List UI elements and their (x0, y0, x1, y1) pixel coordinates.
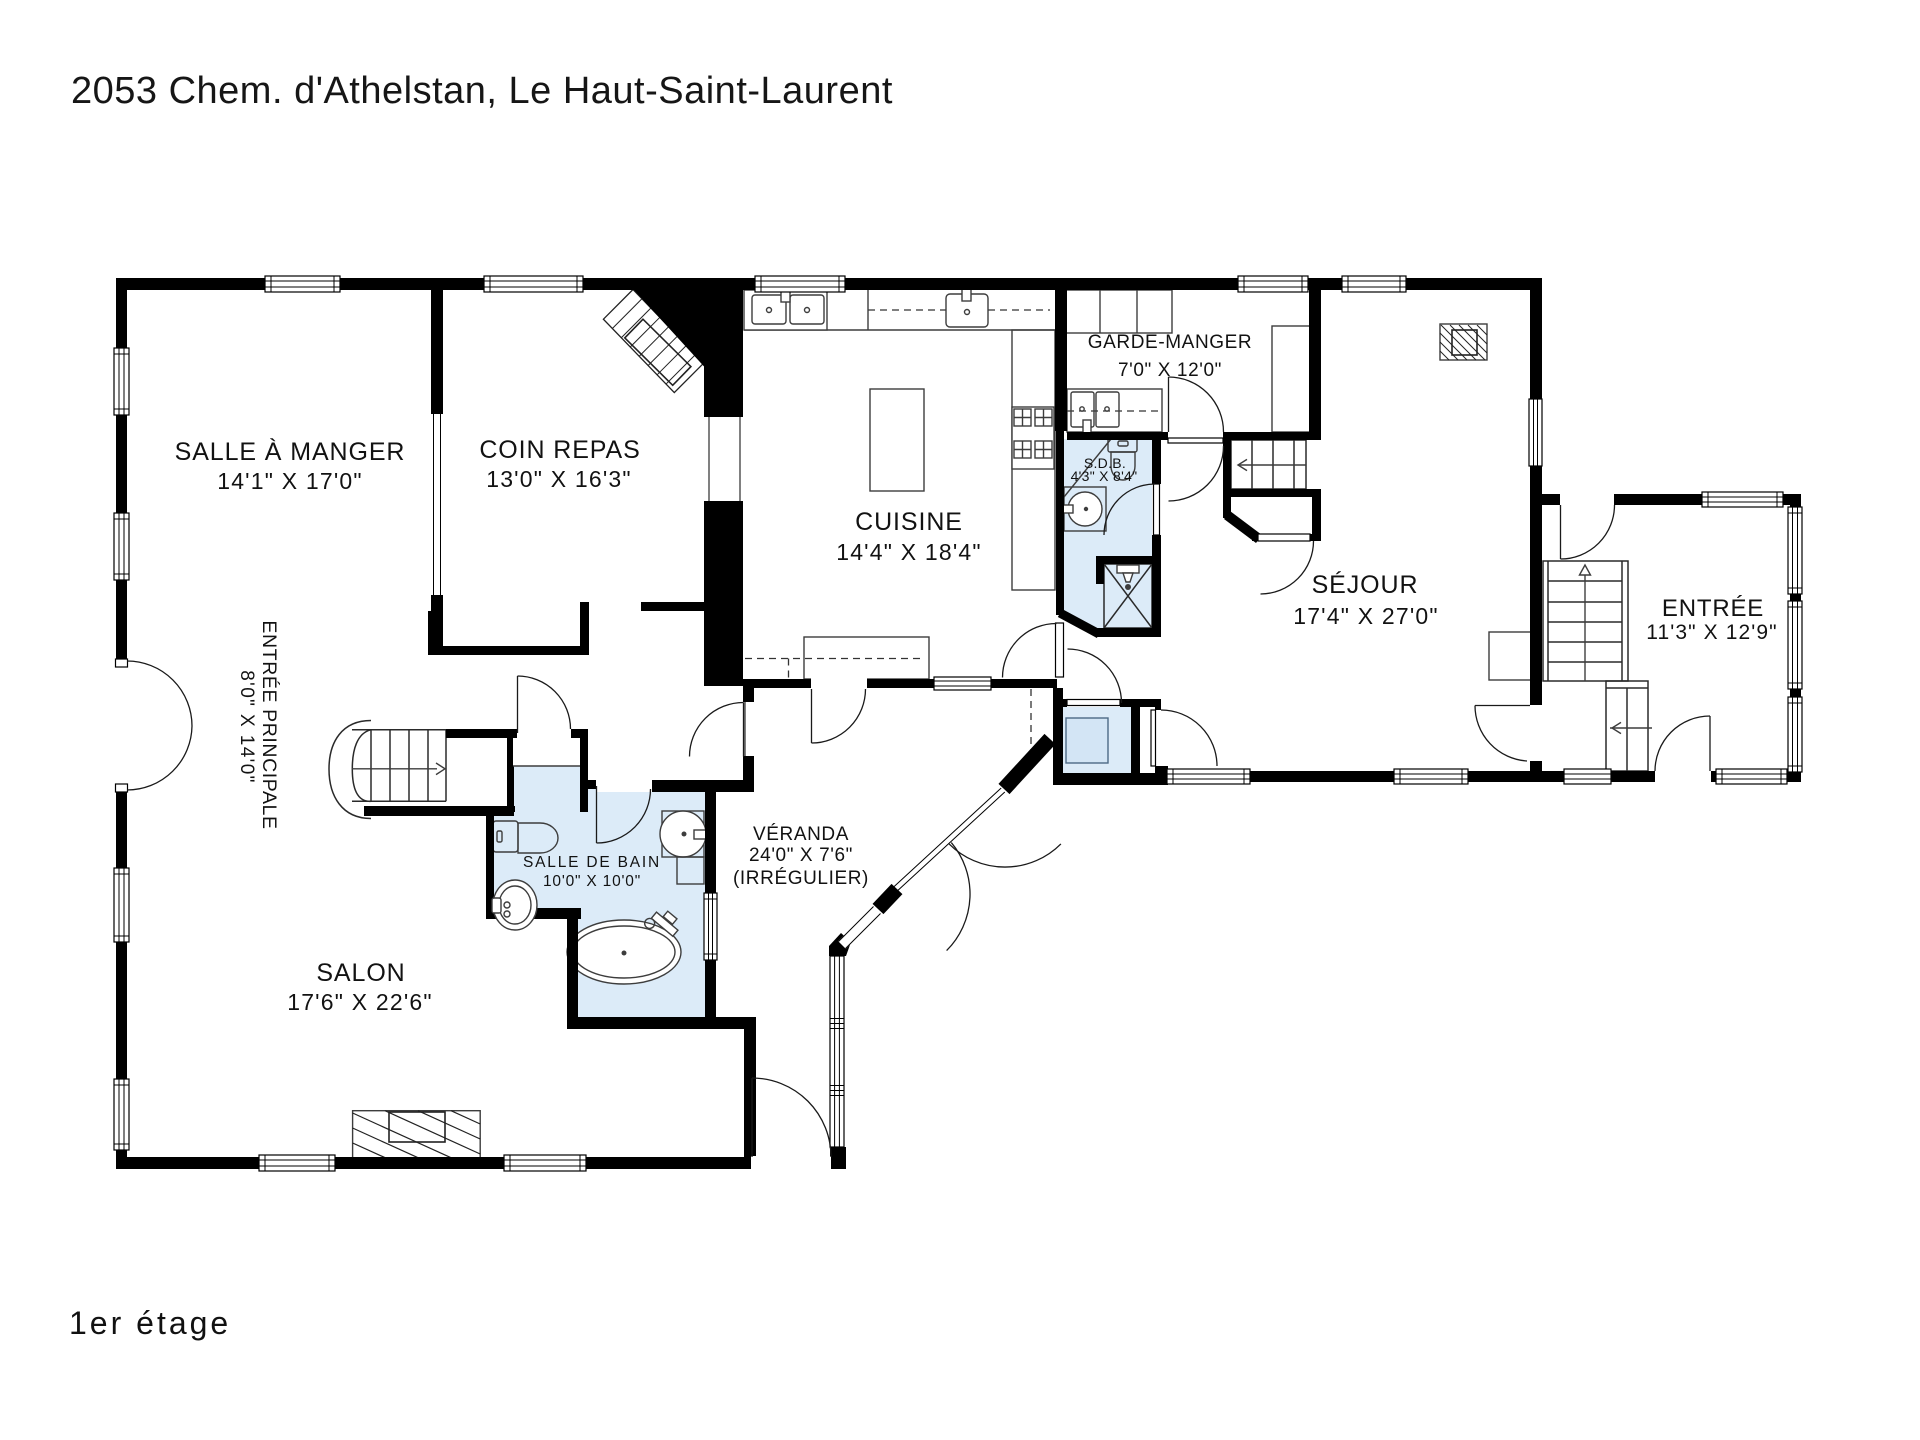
svg-text:SÉJOUR: SÉJOUR (1312, 570, 1419, 599)
svg-text:ENTRÉE: ENTRÉE (1662, 595, 1764, 622)
svg-text:8'0" X 14'0": 8'0" X 14'0" (236, 670, 257, 784)
svg-text:1er étage: 1er étage (69, 1305, 231, 1341)
svg-text:COIN REPAS: COIN REPAS (479, 436, 640, 464)
svg-text:11'3" X 12'9": 11'3" X 12'9" (1646, 621, 1777, 644)
svg-text:GARDE-MANGER: GARDE-MANGER (1088, 332, 1253, 353)
svg-text:SALLE À MANGER: SALLE À MANGER (175, 437, 406, 466)
svg-text:24'0" X 7'6": 24'0" X 7'6" (749, 845, 853, 866)
svg-text:14'4" X 18'4": 14'4" X 18'4" (836, 539, 982, 565)
svg-text:(IRRÉGULIER): (IRRÉGULIER) (733, 868, 869, 889)
svg-text:CUISINE: CUISINE (855, 508, 963, 536)
svg-text:VÉRANDA: VÉRANDA (753, 824, 849, 845)
svg-text:17'4" X 27'0": 17'4" X 27'0" (1293, 603, 1439, 629)
svg-text:10'0" X 10'0": 10'0" X 10'0" (543, 873, 641, 890)
svg-text:13'0" X 16'3": 13'0" X 16'3" (486, 466, 632, 492)
svg-text:2053 Chem. d'Athelstan, Le Hau: 2053 Chem. d'Athelstan, Le Haut-Saint-La… (71, 70, 893, 112)
svg-text:ENTRÉE PRINCIPALE: ENTRÉE PRINCIPALE (258, 620, 281, 829)
svg-text:4'3" X 8'4": 4'3" X 8'4" (1071, 468, 1138, 484)
svg-text:7'0" X 12'0": 7'0" X 12'0" (1118, 360, 1222, 381)
svg-text:17'6" X 22'6": 17'6" X 22'6" (287, 989, 433, 1015)
svg-text:14'1" X 17'0": 14'1" X 17'0" (217, 468, 363, 494)
svg-text:SALLE DE BAIN: SALLE DE BAIN (523, 854, 661, 871)
svg-text:SALON: SALON (316, 959, 405, 987)
